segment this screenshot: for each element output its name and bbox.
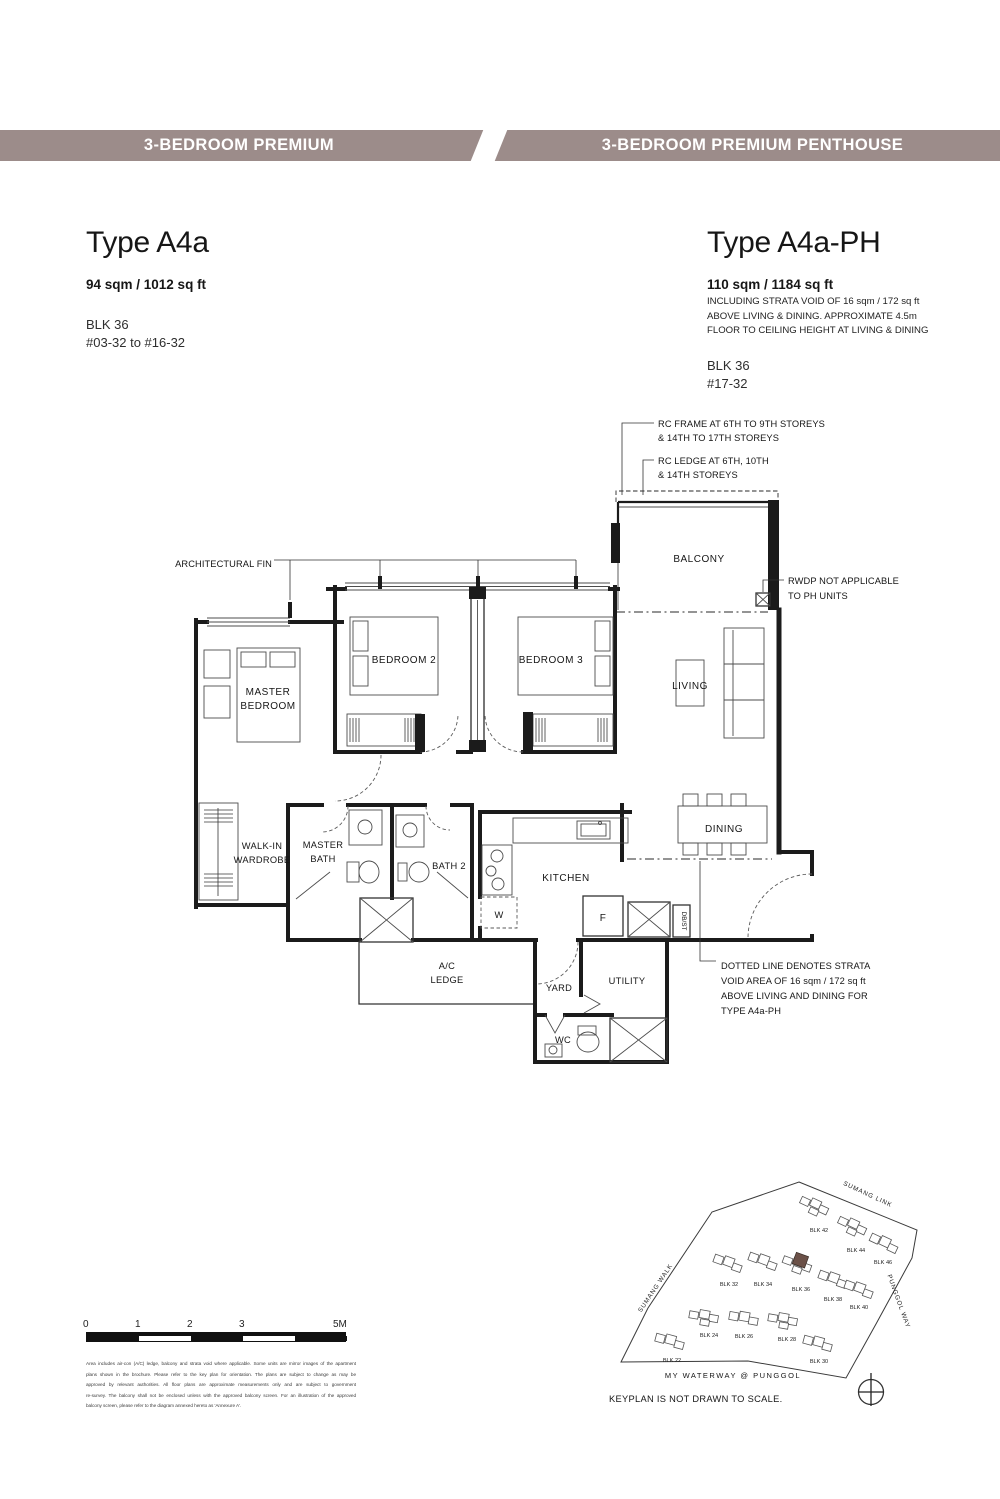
svg-text:VOID AREA OF 16 sqm / 172 sq f: VOID AREA OF 16 sqm / 172 sq ft — [721, 976, 866, 986]
keyplan-block-label: BLK 28 — [778, 1337, 796, 1343]
keyplan-block-label: BLK 38 — [824, 1297, 842, 1303]
leader-lines — [274, 423, 784, 961]
disclaimer-line: plans shown in the brochure. Please refe… — [86, 1370, 356, 1381]
keyplan-note: KEYPLAN IS NOT DRAWN TO SCALE. — [609, 1394, 782, 1404]
svg-text:WARDROBE: WARDROBE — [234, 855, 291, 865]
svg-text:& 14TH TO 17TH STOREYS: & 14TH TO 17TH STOREYS — [658, 433, 779, 443]
label-living: LIVING — [672, 681, 708, 692]
scale-bar-graphic — [86, 1332, 346, 1342]
street-sumang-link: SUMANG LINK — [842, 1180, 893, 1209]
rwdp-box — [756, 593, 770, 606]
keyplan-block-label: BLK 24 — [700, 1333, 718, 1339]
disclaimer-line: re-survey. The balcony shall not be encl… — [86, 1391, 356, 1402]
label-kitchen: KITCHEN — [542, 873, 589, 884]
scale-tick: 0 — [83, 1319, 89, 1330]
scale-bar: 0 1 2 3 5M — [86, 1319, 348, 1342]
keyplan-block-label: BLK 44 — [847, 1248, 865, 1254]
keyplan-block-label: BLK 42 — [810, 1228, 828, 1234]
keyplan-block-label: BLK 26 — [735, 1334, 753, 1340]
label-utility: UTILITY — [609, 976, 646, 986]
label-balcony: BALCONY — [673, 554, 724, 565]
walls — [196, 491, 812, 1062]
keyplan-block-label: BLK 22 — [663, 1358, 681, 1364]
disclaimer-text: Area includes air-con (A/C) ledge, balco… — [86, 1359, 356, 1412]
label-db-st: DB/ST — [680, 912, 687, 931]
floorplan-brochure-page: { "theme": { "banner_color": "#9c8c8a", … — [0, 0, 1000, 1499]
keyplan-block-label: BLK 46 — [874, 1260, 892, 1266]
label-bedroom2: BEDROOM 2 — [372, 655, 437, 666]
keyplan-block-label: BLK 32 — [720, 1282, 738, 1288]
label-fridge: F — [600, 913, 607, 924]
svg-text:TO PH UNITS: TO PH UNITS — [788, 591, 848, 601]
annotation-rwdp: RWDP NOT APPLICABLE — [788, 576, 899, 586]
label-ac-ledge: A/C — [439, 961, 455, 971]
scale-tick: 3 — [239, 1319, 245, 1330]
svg-text:BATH: BATH — [310, 854, 335, 864]
scale-tick: 2 — [187, 1319, 193, 1330]
svg-text:& 14TH STOREYS: & 14TH STOREYS — [658, 470, 738, 480]
annotation-rc-ledge: RC LEDGE AT 6TH, 10TH — [658, 456, 769, 466]
keyplan: BLK 42 BLK 44 BLK 46 BLK 32 BLK 34 BLK 3… — [609, 1180, 917, 1406]
keyplan-block-label: BLK 40 — [850, 1305, 868, 1311]
plan-annotations: ARCHITECTURAL FIN RC FRAME AT 6TH TO 9TH… — [175, 419, 899, 1016]
label-washer: W — [494, 910, 503, 920]
north-compass-icon — [859, 1373, 884, 1406]
label-master-bedroom: MASTER — [246, 687, 291, 698]
label-dining: DINING — [705, 824, 743, 835]
waterway-label: MY WATERWAY @ PUNGGOL — [665, 1371, 801, 1380]
annotation-strata-void: DOTTED LINE DENOTES STRATA — [721, 961, 871, 971]
label-yard: YARD — [546, 983, 572, 993]
scale-tick: 1 — [135, 1319, 141, 1330]
disclaimer-line: Area includes air-con (A/C) ledge, balco… — [86, 1359, 356, 1370]
street-sumang-walk: SUMANG WALK — [637, 1263, 675, 1314]
label-wc: WC — [555, 1035, 571, 1045]
keyplan-block-label-highlighted: BLK 36 — [792, 1287, 810, 1293]
keyplan-block-label: BLK 34 — [754, 1282, 772, 1288]
annotation-architectural-fin: ARCHITECTURAL FIN — [175, 559, 272, 569]
annotation-rc-frame: RC FRAME AT 6TH TO 9TH STOREYS — [658, 419, 825, 429]
disclaimer-line: approved by relevant authorities. All fl… — [86, 1380, 356, 1391]
disclaimer-line: balcony screen, please refer to the diag… — [86, 1401, 356, 1412]
svg-text:BEDROOM: BEDROOM — [240, 701, 295, 712]
label-master-bath: MASTER — [303, 840, 344, 850]
label-bath2: BATH 2 — [432, 861, 466, 871]
label-bedroom3: BEDROOM 3 — [519, 655, 584, 666]
keyplan-block-label: BLK 30 — [810, 1359, 828, 1365]
floor-plan-drawing: BALCONY LIVING DINING MASTER BEDROOM BED… — [0, 0, 1000, 1499]
scale-tick: 5M — [333, 1319, 347, 1330]
label-walk-in-wardrobe: WALK-IN — [242, 841, 283, 851]
svg-text:ABOVE LIVING AND DINING FOR: ABOVE LIVING AND DINING FOR — [721, 991, 868, 1001]
rc-frame-dashed-outline — [616, 491, 778, 502]
svg-text:LEDGE: LEDGE — [430, 975, 463, 985]
svg-text:TYPE A4a-PH: TYPE A4a-PH — [721, 1006, 781, 1016]
